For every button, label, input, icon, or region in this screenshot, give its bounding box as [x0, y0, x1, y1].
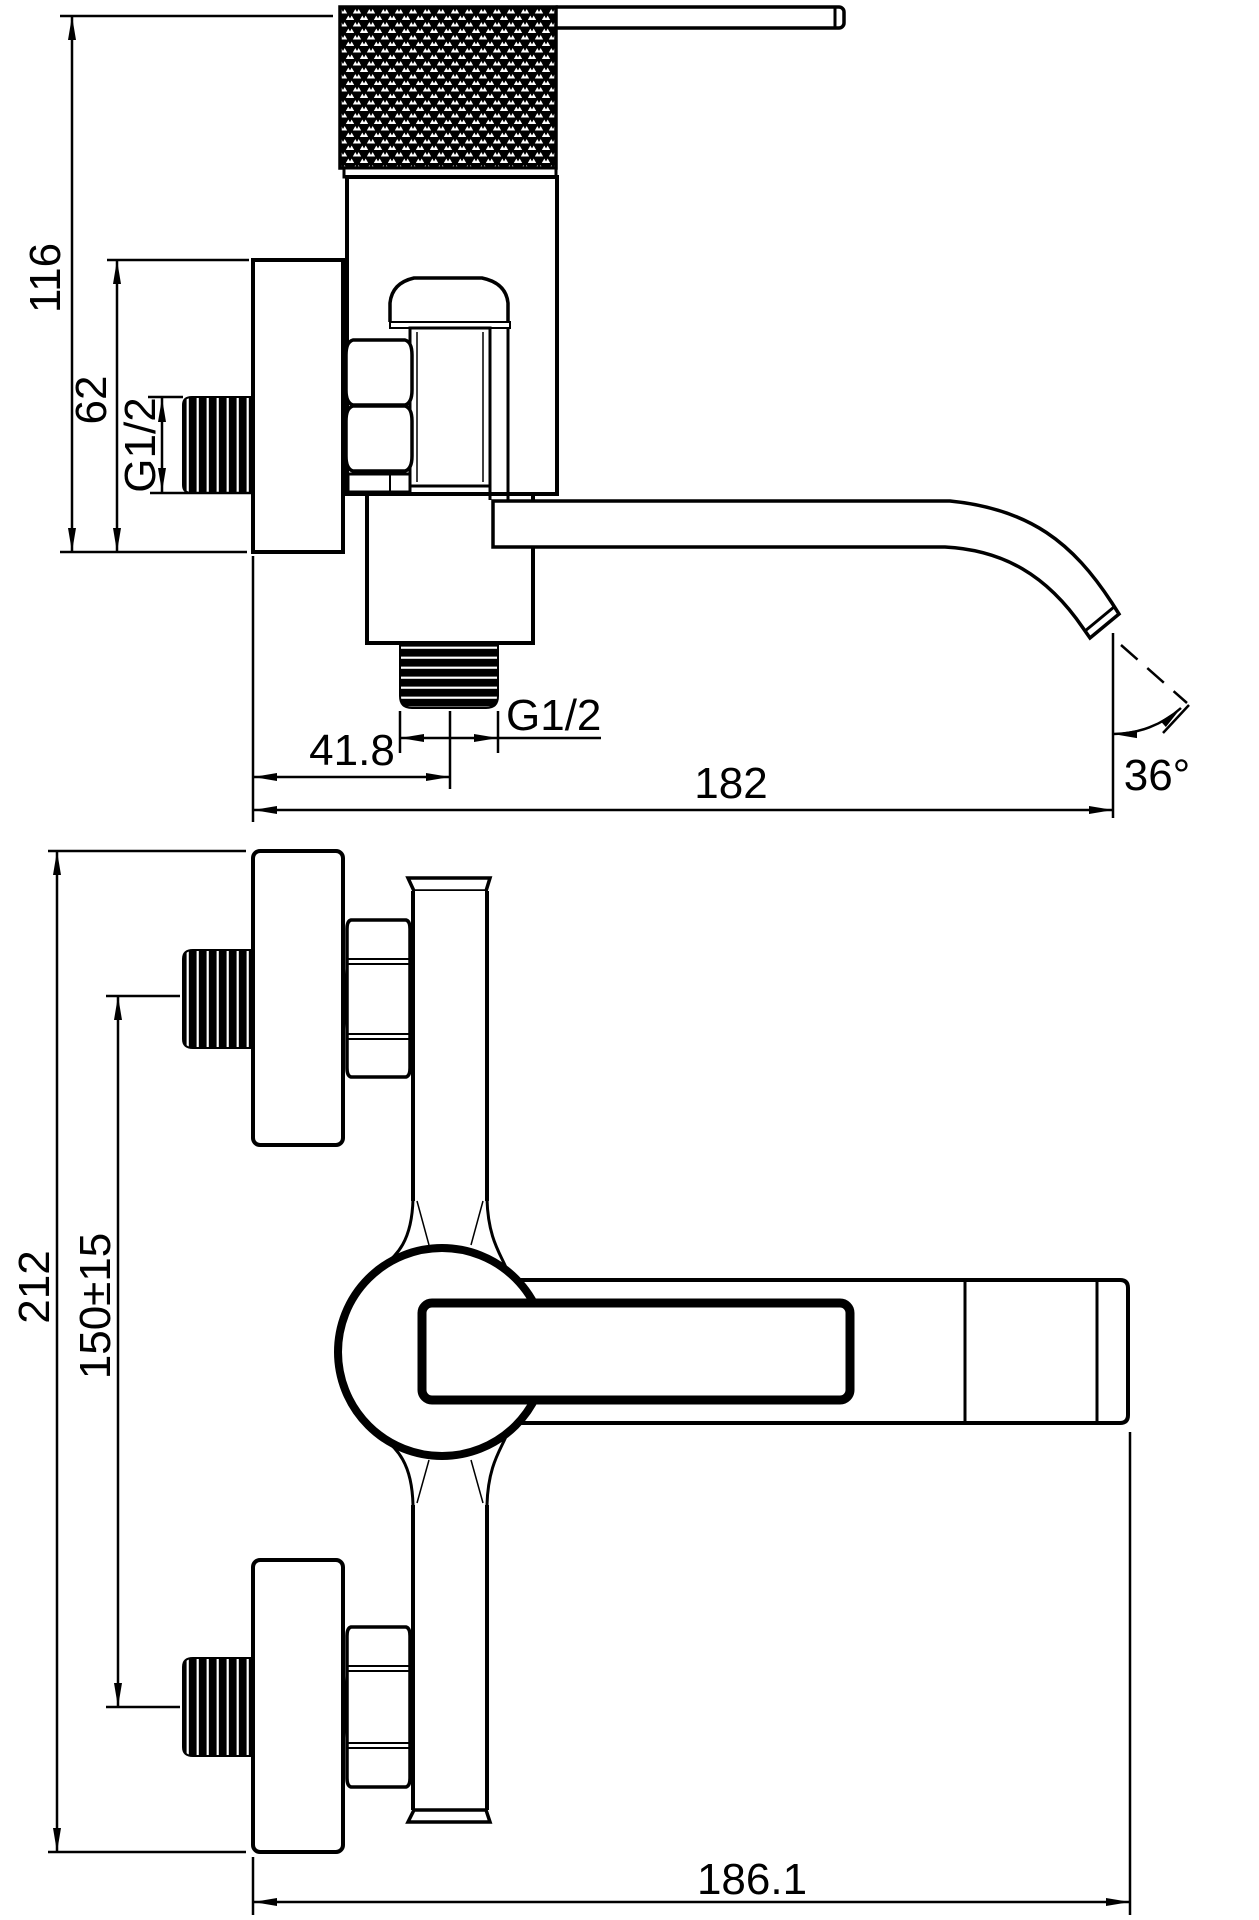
handle-recess-front	[422, 1303, 850, 1400]
wall-plate-top-front	[253, 851, 343, 1145]
dim-side-outlet-thread: G1/2	[506, 691, 601, 740]
wall-plate-side	[253, 260, 343, 552]
lever-handle-side	[552, 7, 844, 28]
drawing-sheet: 116 62 G1/2 G1/2 41.8 182 36°	[0, 0, 1259, 1920]
front-view: 212 150±15 186.1	[10, 851, 1130, 1915]
dim-front-overall-height: 212	[10, 1250, 59, 1323]
dim-side-overall-height: 116	[21, 243, 70, 313]
inlet-thread-bottom-front	[183, 1658, 251, 1756]
wall-plate-bottom-front	[253, 1560, 343, 1852]
union-nut-bottom-front	[345, 1627, 412, 1787]
outlet-thread-stub	[400, 645, 498, 708]
inlet-thread-top-front	[183, 950, 251, 1048]
spout-angle-dimension: 36°	[1113, 633, 1190, 818]
faucet-technical-drawing: 116 62 G1/2 G1/2 41.8 182 36°	[0, 0, 1259, 1920]
inlet-thread-stub-side	[183, 397, 251, 493]
spout	[493, 501, 1119, 638]
knurled-grip	[340, 7, 556, 177]
dim-front-overall-width: 186.1	[697, 1855, 807, 1904]
dim-side-inlet-thread: G1/2	[116, 397, 165, 492]
dim-side-plate-height: 62	[67, 376, 116, 425]
union-nut-top-front	[345, 920, 412, 1077]
union-nut-stack-side	[346, 340, 412, 492]
dim-side-overall-length: 182	[694, 759, 767, 808]
dim-front-inlet-spacing: 150±15	[71, 1233, 120, 1380]
dim-side-spout-angle: 36°	[1124, 751, 1191, 800]
side-view: 116 62 G1/2 G1/2 41.8 182 36°	[21, 7, 1190, 822]
dim-side-outlet-offset: 41.8	[309, 726, 395, 775]
